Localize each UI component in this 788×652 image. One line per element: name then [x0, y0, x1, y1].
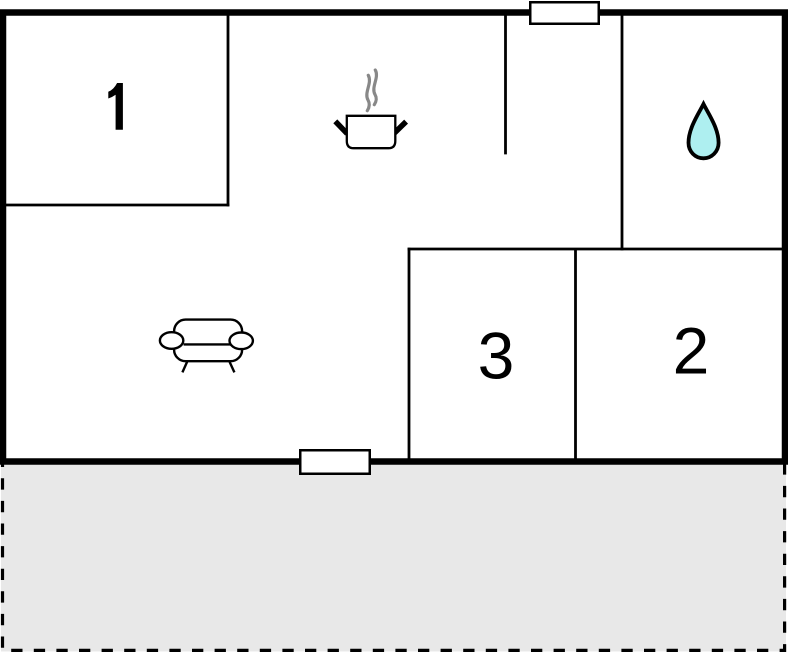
svg-text:2: 2: [673, 314, 710, 388]
svg-text:3: 3: [478, 319, 515, 393]
